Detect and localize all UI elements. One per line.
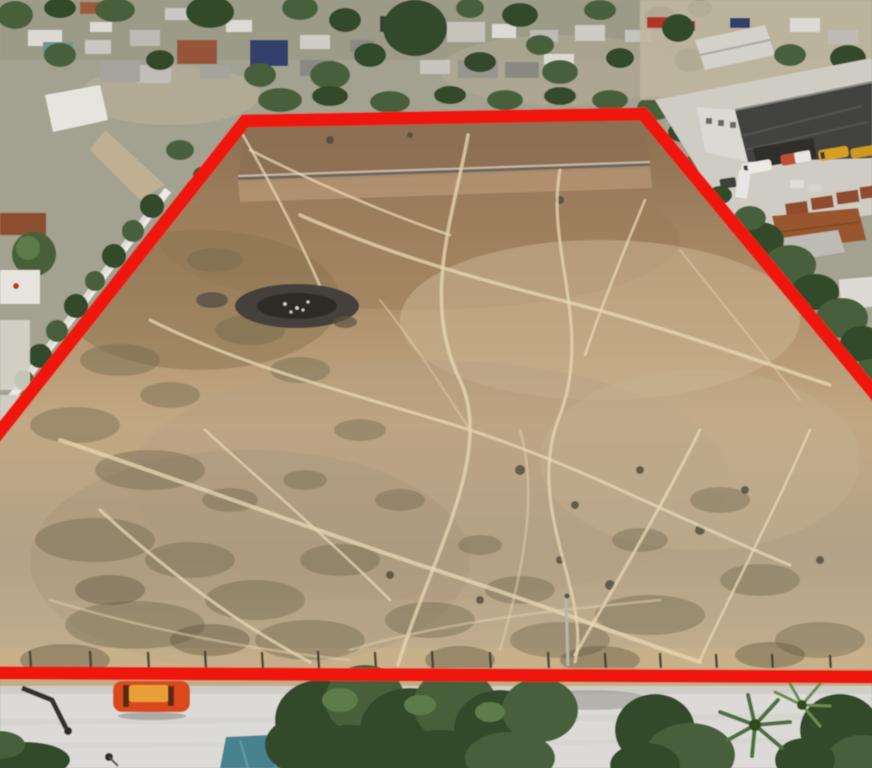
utility-pole	[566, 595, 568, 666]
aerial-photo-svg: Aerial drone photograph of a large vacan…	[0, 0, 872, 768]
aerial-photo: Aerial drone photograph of a large vacan…	[0, 0, 872, 768]
rust-roof-house	[0, 213, 46, 235]
parked-car	[113, 681, 190, 720]
